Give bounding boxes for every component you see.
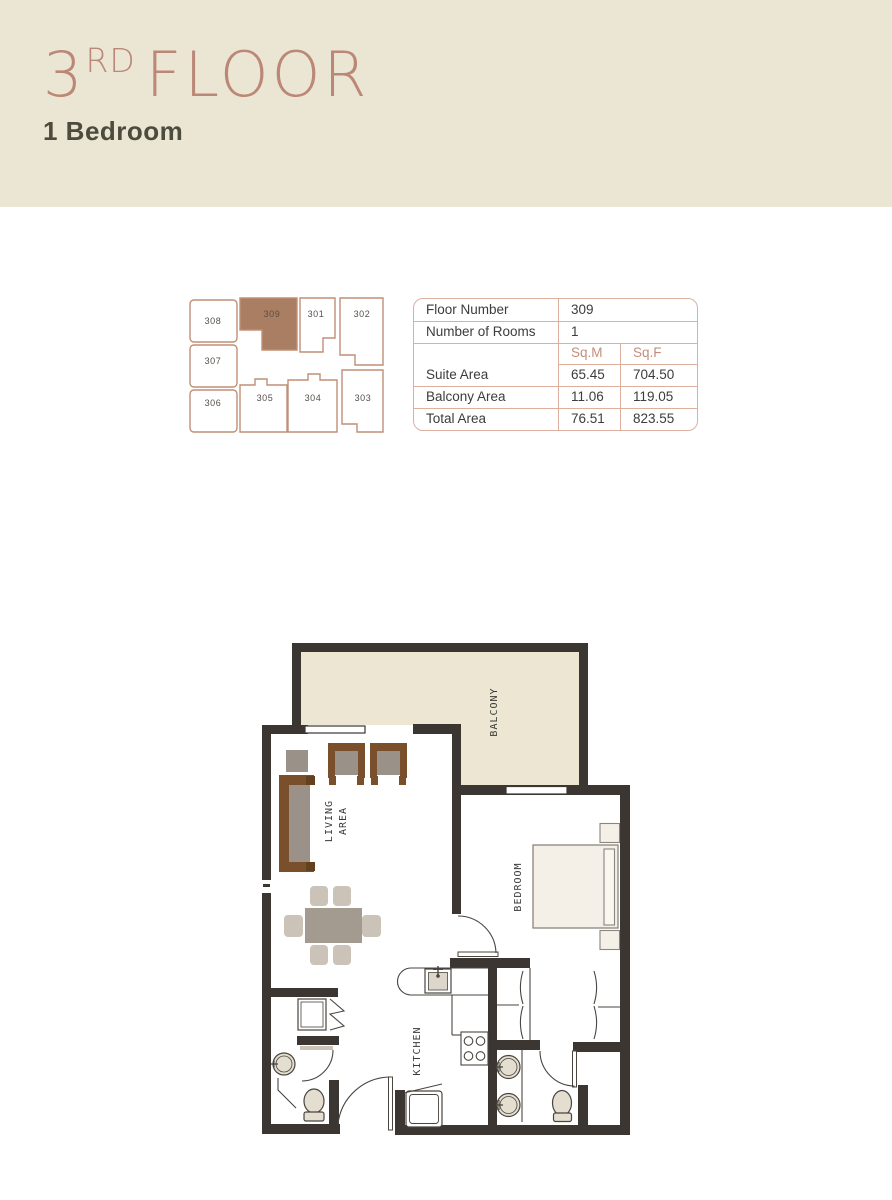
- bedroom-label: BEDROOM: [513, 862, 524, 911]
- door-swing-arc: [338, 1077, 390, 1124]
- dressing-area: [497, 968, 620, 1040]
- unit-label-305: 305: [257, 393, 274, 403]
- kitchen-label: KITCHEN: [412, 1026, 423, 1075]
- dining-chair: [310, 886, 328, 906]
- floor-ordinal-text: RD: [85, 41, 135, 80]
- suite-area-sqm: 65.45: [571, 364, 605, 386]
- floor-number-text: 3: [43, 38, 85, 111]
- door-leaf: [389, 1077, 393, 1130]
- unit-label-304: 304: [305, 393, 322, 403]
- suite-area-sqf: 704.50: [633, 364, 674, 386]
- header-band: 3RDFLOOR 1 Bedroom: [0, 0, 892, 207]
- dining-table: [305, 908, 362, 943]
- floor-number-label: Floor Number: [426, 299, 509, 321]
- dining-chair: [310, 945, 328, 965]
- col-header-sqm: Sq.M: [571, 342, 603, 363]
- living-area-label-line2: AREA: [338, 807, 349, 835]
- toilet-tank: [554, 1113, 572, 1122]
- wardrobe-door: [594, 971, 597, 1004]
- sofa-foot: [306, 776, 315, 785]
- table-line: [620, 343, 621, 430]
- nightstand: [600, 824, 620, 843]
- master-bathroom: [496, 1050, 577, 1122]
- shower-edge: [278, 1078, 296, 1108]
- wardrobe-door: [520, 1006, 523, 1039]
- page-title: 3RDFLOOR: [43, 44, 369, 116]
- total-area-sqm: 76.51: [571, 408, 605, 430]
- rooms-value: 1: [571, 321, 579, 343]
- door-threshold: [300, 1046, 333, 1050]
- armchair: [370, 743, 407, 785]
- living-furniture: [279, 743, 407, 965]
- sofa-seat: [289, 785, 310, 862]
- bedroom-window: [506, 787, 567, 795]
- side-window-line: [263, 884, 270, 887]
- rooms-label: Number of Rooms: [426, 321, 536, 343]
- entry-door: [338, 1077, 393, 1130]
- sofa-foot: [306, 862, 315, 871]
- bifold-door: [330, 999, 344, 1030]
- floor-word-text: FLOOR: [146, 38, 370, 111]
- bedroom-furniture: [533, 824, 620, 950]
- unit-outline-306: [190, 390, 237, 432]
- toilet-tank: [304, 1112, 324, 1121]
- page-subtitle: 1 Bedroom: [43, 116, 183, 147]
- faucet: [436, 974, 440, 978]
- hall-closet: [298, 999, 344, 1030]
- bedroom-door: [458, 916, 498, 957]
- floor-number-value: 309: [571, 299, 594, 321]
- unit-label-303: 303: [355, 393, 372, 403]
- unit-label-308: 308: [205, 316, 222, 326]
- unit-outline-304: [288, 374, 337, 432]
- brochure-page: { "header": { "floor_number": "3", "floo…: [0, 0, 892, 1200]
- floor-plan: BALCONY LIVING AREA BEDROOM KITCHEN: [258, 632, 643, 1144]
- door-swing-arc: [540, 1051, 575, 1086]
- appliance: [406, 1091, 442, 1127]
- table-line: [558, 299, 559, 430]
- balcony-area-sqm: 11.06: [571, 386, 604, 408]
- small-bathroom: [271, 1046, 333, 1121]
- total-area-label: Total Area: [426, 408, 486, 430]
- balcony-area-sqf: 119.05: [633, 386, 673, 408]
- unit-outline-307: [190, 345, 237, 387]
- stove: [461, 1032, 488, 1065]
- living-area-label-line1: LIVING: [324, 800, 335, 842]
- unit-label-302: 302: [354, 309, 371, 319]
- toilet-bowl: [304, 1089, 324, 1113]
- wardrobe-door: [594, 1006, 597, 1039]
- suite-area-label: Suite Area: [426, 364, 488, 386]
- unit-label-309: 309: [264, 309, 281, 319]
- col-header-sqf: Sq.F: [633, 342, 662, 363]
- unit-outline-305: [240, 379, 287, 432]
- balcony-area-label: Balcony Area: [426, 386, 506, 408]
- armchair: [328, 743, 365, 785]
- balcony-label: BALCONY: [489, 687, 500, 736]
- dining-chair: [284, 915, 303, 937]
- unit-label-307: 307: [205, 356, 222, 366]
- unit-label-306: 306: [205, 398, 222, 408]
- unit-info-table: Floor Number 309 Number of Rooms 1 Sq.M …: [413, 298, 698, 431]
- dining-chair: [333, 945, 351, 965]
- door-leaf: [458, 952, 498, 957]
- unit-label-301: 301: [308, 309, 325, 319]
- sofa-back: [279, 775, 289, 872]
- bed-headboard: [604, 849, 615, 925]
- door-swing-arc: [302, 1050, 333, 1081]
- door-swing-arc: [458, 916, 496, 953]
- total-area-sqf: 823.55: [633, 408, 674, 430]
- unit-outline-301: [300, 298, 335, 352]
- dining-chair: [333, 886, 351, 906]
- closet-cabinet: [298, 999, 326, 1030]
- unit-outline-309-highlight: [240, 298, 297, 350]
- wardrobe-door: [520, 971, 523, 1004]
- living-window: [305, 726, 365, 733]
- door-leaf: [573, 1051, 577, 1087]
- dining-chair: [362, 915, 381, 937]
- toilet-bowl: [553, 1091, 572, 1116]
- key-plan: 308 309 301 302 307 306 305 304 303: [185, 293, 387, 436]
- nightstand: [600, 931, 620, 950]
- side-table: [286, 750, 308, 772]
